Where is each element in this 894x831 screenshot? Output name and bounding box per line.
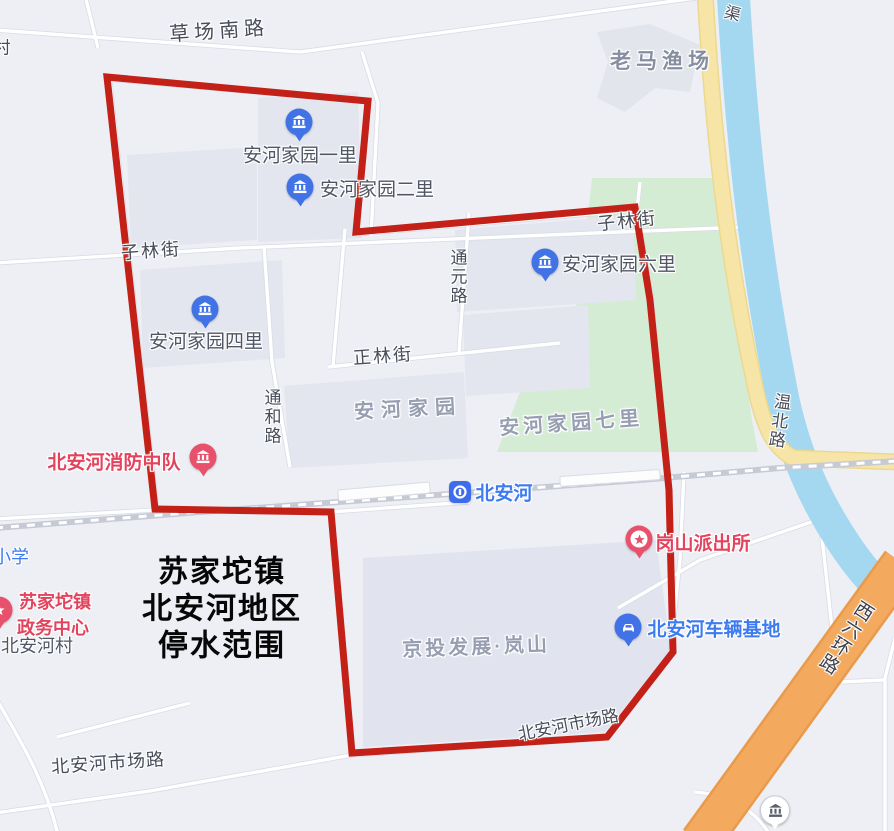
area-label-jingtou-lanshan: 京投发展·岚山 xyxy=(402,628,551,662)
police-star-icon xyxy=(631,531,648,548)
poi-bubble-icon[interactable] xyxy=(760,795,790,825)
poi-label-gov-line1[interactable]: 苏家坨镇 xyxy=(19,588,91,614)
poi-label-station[interactable]: 北安河 xyxy=(475,479,532,506)
depot-car-pin-icon[interactable] xyxy=(615,614,642,641)
area-label-anhe-jiayuan: 安河家园 xyxy=(353,390,462,425)
canal xyxy=(733,0,894,603)
poi-label-liuli[interactable]: 安河家园六里 xyxy=(562,250,676,277)
poi-label-sili[interactable]: 安河家园四里 xyxy=(149,327,263,354)
poi-label-fire-brigade[interactable]: 北安河消防中队 xyxy=(47,448,180,475)
police-pin-icon[interactable] xyxy=(626,526,653,553)
road-label-zilin-west: 子林街 xyxy=(120,235,182,265)
outage-title-line1: 苏家坨镇 xyxy=(142,554,302,591)
road-label-tonghe: 通和路 xyxy=(259,389,284,446)
road-label-tongyuan: 通元路 xyxy=(445,249,470,306)
road-label-zhenglin: 正林街 xyxy=(352,340,414,370)
star-glyph-icon xyxy=(0,604,6,617)
fire-brigade-pin-icon[interactable] xyxy=(190,444,217,471)
star-glyph-icon xyxy=(633,533,645,545)
metro-logo-icon xyxy=(452,484,468,500)
poi-label-gov-line2[interactable]: 政务中心 xyxy=(17,614,89,640)
outage-title-line2: 北安河地区 xyxy=(142,591,302,628)
poi-label-police[interactable]: 岗山派出所 xyxy=(655,529,750,556)
map-canvas[interactable]: 村 草场南路 渠 子林街 子林街 通元路 正林街 通和路 温北路 北安河市场路 … xyxy=(0,0,894,831)
building-glyph-icon xyxy=(292,115,307,130)
building-pin-icon[interactable] xyxy=(287,174,314,201)
building-glyph-icon xyxy=(538,255,553,270)
building-glyph-icon xyxy=(293,180,308,195)
building-pin-icon[interactable] xyxy=(286,109,313,136)
outage-title: 苏家坨镇 北安河地区 停水范围 xyxy=(142,554,302,665)
metro-station-icon[interactable] xyxy=(449,481,471,503)
poi-label-erli[interactable]: 安河家园二里 xyxy=(320,175,434,202)
building-pin-icon[interactable] xyxy=(532,249,559,276)
building-pin-icon[interactable] xyxy=(192,296,219,323)
car-glyph-icon xyxy=(620,619,636,635)
building-glyph-icon xyxy=(198,302,213,317)
government-building-glyph-icon xyxy=(196,450,211,465)
area-label-xiaoxue: 小学 xyxy=(0,543,29,569)
area-label-laoma-fishery: 老马渔场 xyxy=(610,45,714,75)
poi-label-depot[interactable]: 北安河车辆基地 xyxy=(647,615,780,642)
road-label-cun: 村 xyxy=(0,34,11,59)
poi-label-yili[interactable]: 安河家园一里 xyxy=(243,141,357,168)
building-glyph-icon xyxy=(768,803,783,818)
outage-title-line3: 停水范围 xyxy=(142,628,302,665)
